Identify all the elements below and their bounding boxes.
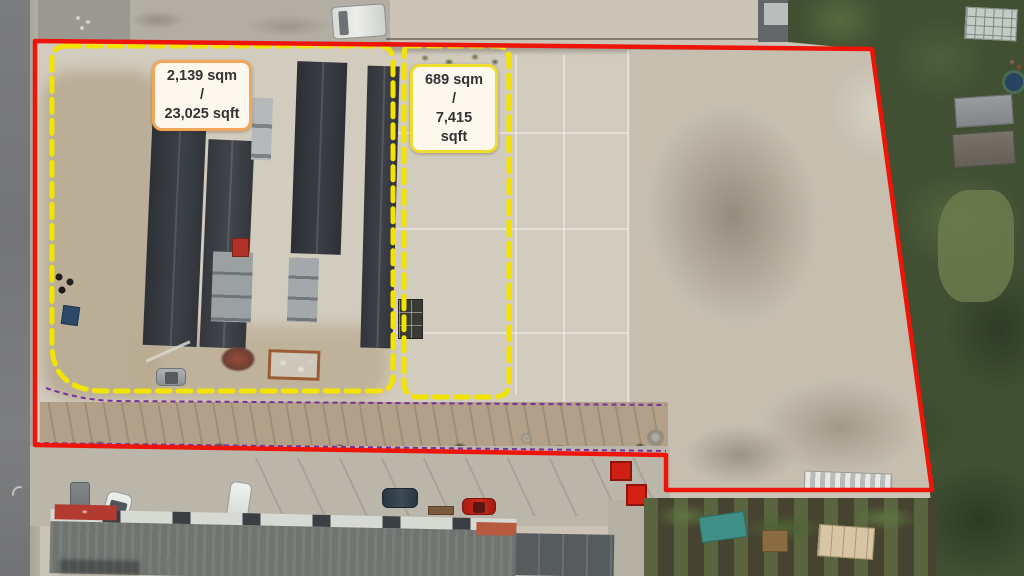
trampoline <box>1002 70 1024 94</box>
timber-boards <box>817 524 875 560</box>
drain-cover <box>647 429 664 446</box>
garden-shed-2 <box>952 130 1016 168</box>
grey-container-stack <box>287 257 319 322</box>
roof-ridge <box>170 102 183 346</box>
concrete-seam <box>515 55 517 395</box>
container-storage-row <box>291 61 348 255</box>
van-windshield <box>338 11 349 36</box>
teal-tarp <box>698 511 747 543</box>
concrete-seam <box>396 332 628 334</box>
damp-patch <box>634 94 833 336</box>
container-storage-row <box>143 99 208 347</box>
parked-van <box>331 3 387 40</box>
rust-roof-patch <box>476 522 516 536</box>
warehouse-roof <box>49 509 516 576</box>
light-container-pair <box>251 98 273 161</box>
garden-lawn <box>938 190 1014 302</box>
red-roof-signage <box>55 504 117 520</box>
dirt-track-strip <box>40 402 668 452</box>
slate-roof-building <box>514 533 615 576</box>
damp-patch <box>685 425 795 485</box>
red-bin <box>610 461 632 481</box>
white-ribbed-structure <box>804 470 893 499</box>
parked-car-red <box>462 498 496 515</box>
window-frame-on-ground <box>398 299 423 339</box>
greenhouse <box>964 7 1018 42</box>
red-container <box>232 238 249 257</box>
blue-crate <box>61 305 80 326</box>
area-label-unit-left: 2,139 sqm / 23,025 sqft <box>152 60 252 131</box>
bench <box>428 506 454 515</box>
allotment-garden <box>644 498 936 576</box>
scrap-pile <box>220 346 256 372</box>
car-windshield <box>165 372 178 384</box>
tyre-pile <box>52 270 80 298</box>
parked-car-dark <box>382 488 418 508</box>
roof-ridge <box>316 62 325 254</box>
drain-cover-small <box>521 433 532 444</box>
roof-skylight <box>764 3 790 25</box>
wooden-pallet <box>762 530 788 552</box>
containers-row <box>386 0 760 40</box>
aerial-site-photo: 2,139 sqm / 23,025 sqft 689 sqm / 7,415 … <box>0 0 1024 576</box>
white-sacks <box>72 12 100 34</box>
skip-bin <box>267 349 320 381</box>
car-roof <box>473 502 485 513</box>
area-label-unit-right: 689 sqm / 7,415 sqft <box>410 64 498 153</box>
concrete-seam <box>396 228 628 230</box>
roof-ridge <box>376 66 385 348</box>
garden-shed <box>954 94 1014 128</box>
parked-car-yard <box>156 368 186 386</box>
garden-objects <box>1008 58 1024 72</box>
grey-container-stack <box>211 251 253 322</box>
container-storage-row <box>360 66 399 349</box>
roof-markings <box>59 559 139 575</box>
